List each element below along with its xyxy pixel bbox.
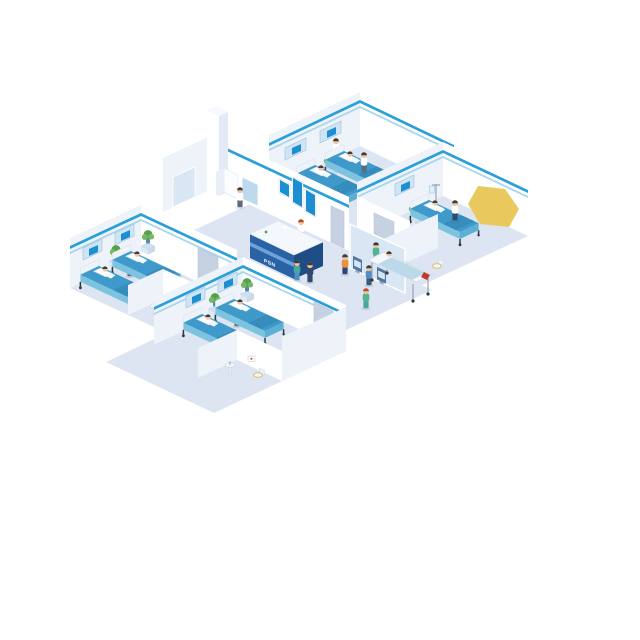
wall-frame — [248, 356, 255, 362]
illustration-canvas: PSN — [0, 0, 640, 640]
hospital-isometric-illustration: PSN — [0, 0, 640, 640]
display-screen-icon — [293, 178, 302, 207]
desk-papers — [283, 226, 287, 228]
desk-plant — [265, 231, 268, 234]
door — [331, 206, 344, 248]
